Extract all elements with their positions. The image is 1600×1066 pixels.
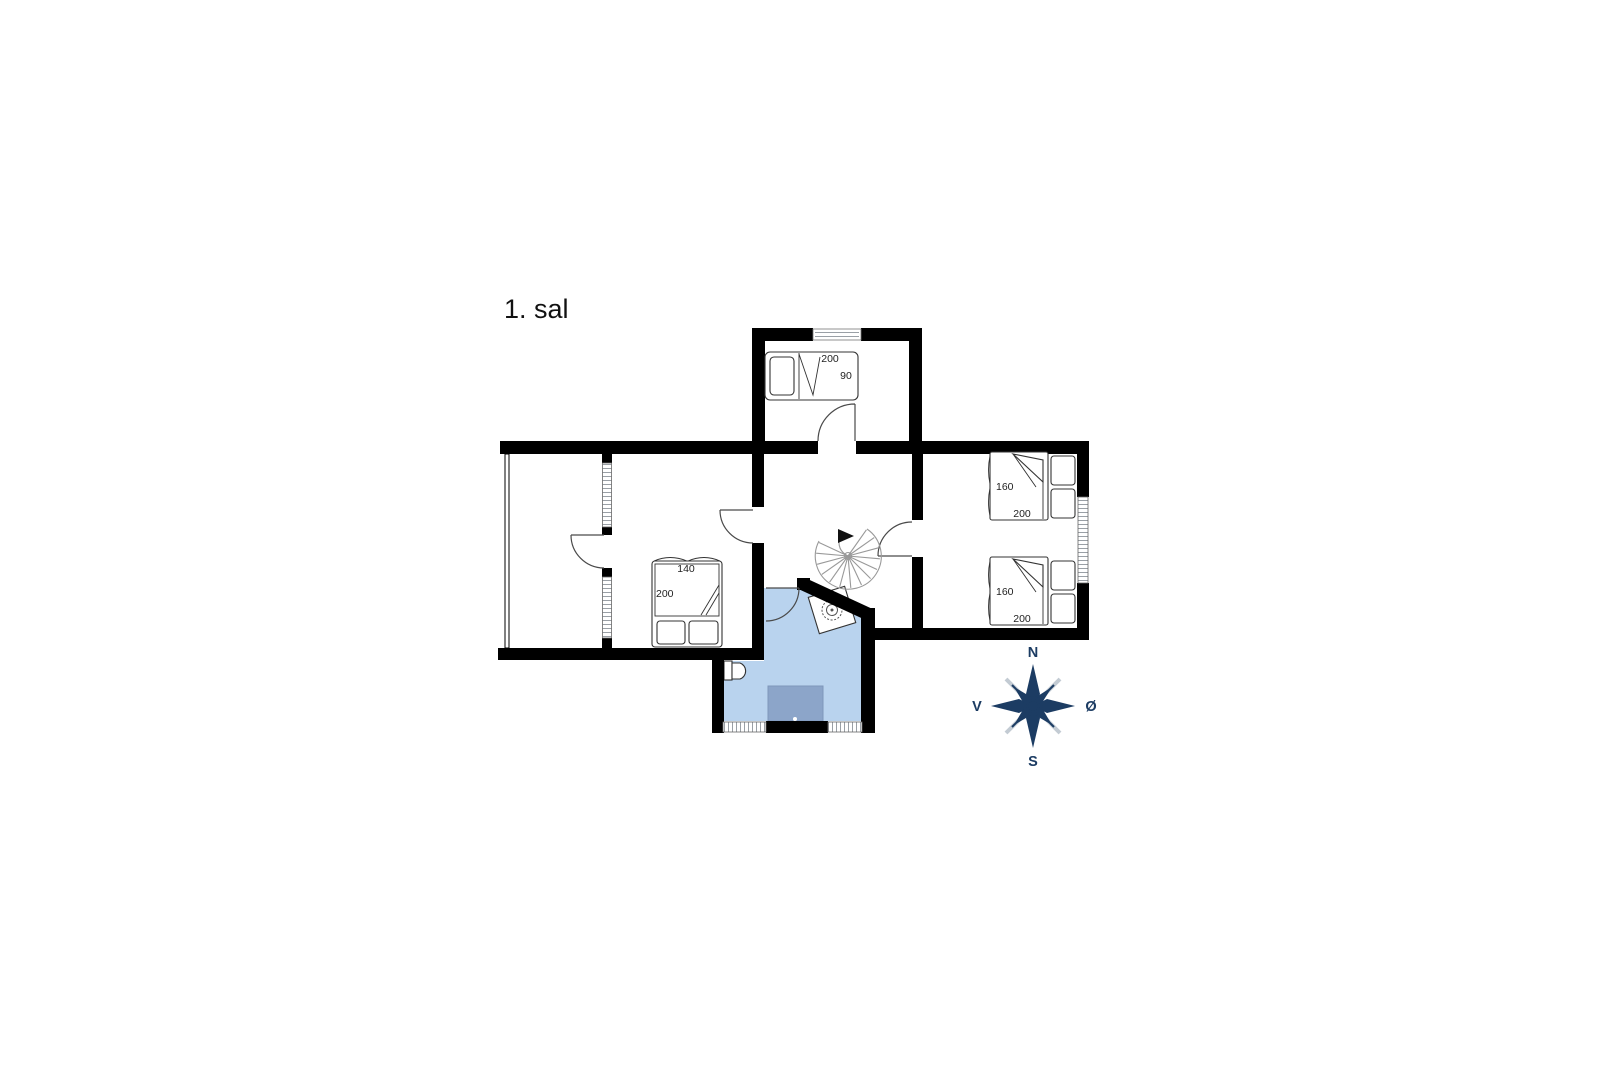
bed-dimension-label: 160 — [996, 586, 1014, 598]
window — [813, 329, 861, 340]
door-right-room — [878, 522, 912, 556]
compass-rose: N S V Ø — [972, 645, 1096, 770]
thin-wall — [505, 454, 509, 648]
wall — [500, 441, 818, 454]
floor-label: 1. sal — [504, 294, 569, 324]
wall — [1077, 441, 1089, 497]
window — [603, 463, 612, 527]
door-left-room — [571, 535, 604, 568]
shower-base — [768, 686, 823, 721]
stair-direction-arrow — [838, 529, 854, 543]
window — [828, 722, 862, 732]
floor-plan-page: 1. sal — [0, 0, 1600, 1066]
bed-dimension-label: 200 — [1013, 613, 1031, 625]
window — [1078, 497, 1088, 583]
wall — [498, 648, 764, 660]
bed-dimension-label: 200 — [821, 353, 839, 365]
bed-dimension-label: 200 — [1013, 508, 1031, 520]
wall — [602, 568, 612, 577]
window — [723, 722, 766, 732]
bed-dimension-label: 200 — [656, 588, 674, 600]
window — [603, 577, 612, 638]
wall — [912, 454, 923, 520]
wall — [752, 543, 764, 660]
wall — [862, 721, 875, 733]
wall — [861, 608, 875, 733]
wall — [752, 454, 764, 507]
wall — [875, 628, 1089, 640]
drain-dot — [793, 717, 797, 721]
wall — [602, 638, 612, 660]
door-top-room — [818, 404, 855, 441]
bed-dimension-label: 160 — [996, 481, 1014, 493]
bed-dimension-label: 90 — [840, 370, 852, 382]
wall — [856, 441, 1089, 454]
compass-label-south: S — [1028, 754, 1038, 770]
floor-plan: 1. sal — [0, 0, 1600, 1066]
compass-label-north: N — [1028, 645, 1038, 661]
toilet-icon — [724, 661, 746, 680]
wall — [909, 328, 922, 454]
spiral-staircase — [815, 529, 881, 589]
compass-label-west: V — [972, 699, 982, 715]
doors — [571, 404, 912, 621]
wall — [752, 328, 765, 454]
compass-label-east: Ø — [1085, 699, 1096, 715]
bed-dimension-label: 140 — [677, 563, 695, 575]
wall — [766, 721, 828, 733]
wall — [712, 655, 724, 733]
wall — [602, 454, 612, 463]
wall — [912, 557, 923, 640]
door-middle-room — [720, 510, 753, 543]
wall — [602, 527, 612, 535]
